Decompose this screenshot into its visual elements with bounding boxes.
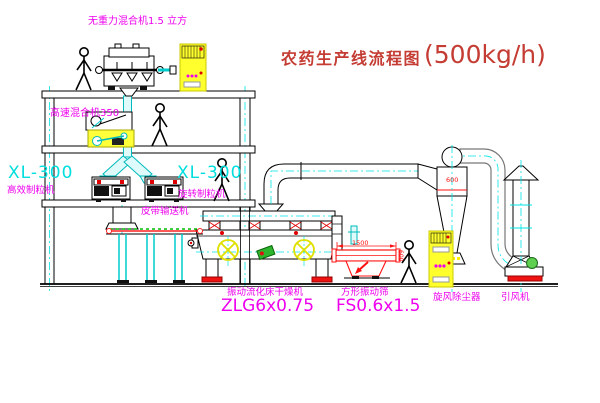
- label-xl300-left: XL-300: [8, 165, 73, 182]
- dim-sieve-width: 600: [397, 250, 403, 261]
- label-granulator-mid: 旋转制粒机: [178, 190, 226, 200]
- label-gravity-mixer: 无重力混合机1.5 立方: [88, 17, 187, 27]
- granulator-left-unit: [92, 177, 130, 202]
- dryer-exhaust-duct: [259, 162, 452, 212]
- dim-sieve-length: 1500: [352, 240, 369, 247]
- label-sieve-model: FS0.6x1.5: [336, 298, 420, 315]
- title-capacity: (500kg/h): [424, 44, 546, 67]
- dim-cyclone-diameter: 600: [446, 177, 458, 184]
- fluid-bed-dryer: [188, 211, 340, 282]
- diagram-title: 农药生产线流程图 (500kg/h): [281, 44, 546, 67]
- person-second-level: [152, 104, 167, 146]
- label-xl300-mid: XL-300: [177, 165, 242, 182]
- control-cabinet-top: [180, 44, 206, 91]
- label-granulator-left: 高效制粒机: [7, 186, 55, 196]
- cad-flow-diagram: 农药生产线流程图 (500kg/h) 无重力混合机1.5 立方 高速混合机350…: [0, 0, 600, 403]
- label-fan: 引风机: [501, 293, 530, 303]
- gravity-free-mixer: [96, 44, 177, 96]
- label-high-speed-mixer: 高速混合机350: [50, 109, 119, 119]
- label-cyclone: 旋风除尘器: [433, 293, 481, 303]
- vibrating-sieve: [332, 216, 400, 279]
- title-text: 农药生产线流程图: [281, 51, 421, 67]
- control-cabinet-cyclone: [429, 231, 453, 287]
- label-dryer-model: ZLG6x0.75: [221, 298, 314, 315]
- person-top-level: [76, 48, 91, 90]
- person-ground-level: [401, 241, 416, 283]
- label-belt-conveyor: 皮带输送机: [141, 207, 189, 217]
